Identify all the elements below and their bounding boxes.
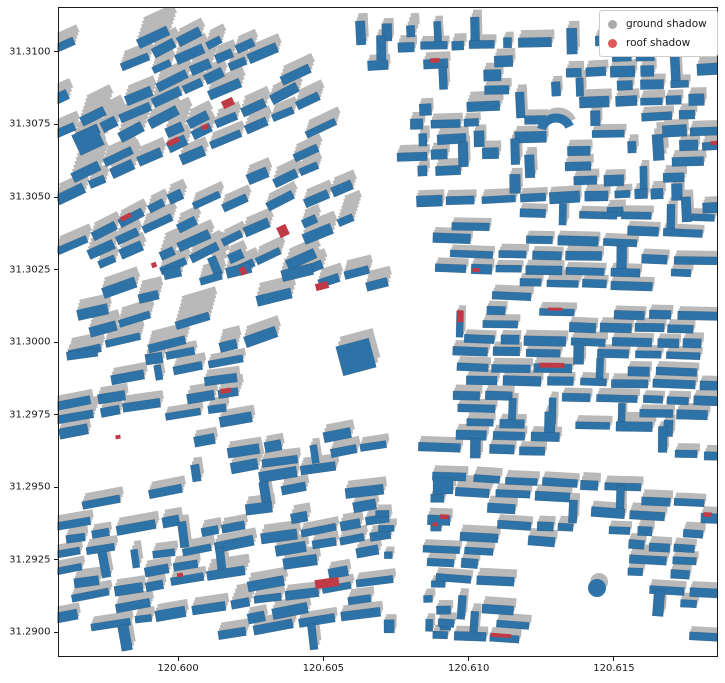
ground-shadow-marker-icon — [608, 20, 617, 29]
map-canvas — [0, 0, 725, 683]
y-tick-mark — [54, 414, 58, 415]
x-tick-mark — [613, 657, 614, 661]
y-tick-label: 31.2900 — [9, 627, 50, 638]
x-tick-mark — [468, 657, 469, 661]
y-tick-mark — [54, 632, 58, 633]
legend-item-ground-shadow: ground shadow — [608, 16, 707, 32]
legend: ground shadow roof shadow — [599, 10, 718, 57]
y-tick-mark — [54, 197, 58, 198]
x-tick-label: 120.615 — [593, 663, 634, 674]
figure: 120.600120.605120.610120.61531.310031.30… — [0, 0, 725, 683]
y-tick-mark — [54, 51, 58, 52]
y-tick-mark — [54, 487, 58, 488]
legend-label-ground-shadow: ground shadow — [626, 16, 707, 32]
y-tick-label: 31.3100 — [9, 46, 50, 57]
y-tick-mark — [54, 124, 58, 125]
y-tick-label: 31.3000 — [9, 337, 50, 348]
y-tick-mark — [54, 342, 58, 343]
y-tick-mark — [54, 269, 58, 270]
x-tick-label: 120.610 — [448, 663, 489, 674]
x-tick-mark — [323, 657, 324, 661]
y-tick-label: 31.3025 — [9, 264, 50, 275]
y-tick-mark — [54, 559, 58, 560]
y-tick-label: 31.3075 — [9, 119, 50, 130]
x-tick-mark — [178, 657, 179, 661]
y-tick-label: 31.2950 — [9, 482, 50, 493]
legend-label-roof-shadow: roof shadow — [626, 35, 690, 51]
x-tick-label: 120.605 — [303, 663, 344, 674]
legend-item-roof-shadow: roof shadow — [608, 35, 707, 51]
roof-shadow-marker-icon — [608, 39, 617, 48]
y-tick-label: 31.2975 — [9, 409, 50, 420]
y-tick-label: 31.3050 — [9, 192, 50, 203]
y-tick-label: 31.2925 — [9, 554, 50, 565]
x-tick-label: 120.600 — [157, 663, 198, 674]
